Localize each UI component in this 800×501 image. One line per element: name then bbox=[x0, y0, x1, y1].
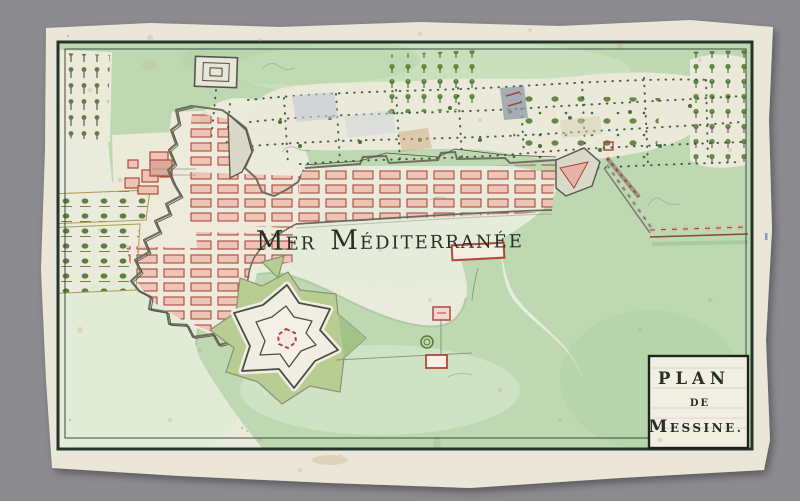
cartouche-line2: DE bbox=[690, 398, 710, 409]
orchard-northeast bbox=[686, 50, 746, 164]
square-fort bbox=[194, 56, 237, 87]
title-cartouche: PLAN DE MESSINE. bbox=[649, 356, 748, 448]
orchard-central bbox=[383, 50, 484, 114]
tree-field bbox=[62, 53, 110, 140]
blue-mark bbox=[765, 233, 768, 240]
cartouche-line1: PLAN bbox=[658, 369, 730, 388]
map-content: MERMÉDITERRANÉE bbox=[25, 35, 751, 465]
map-scene: MERMÉDITERRANÉE PLAN DE MESSINE. bbox=[0, 0, 800, 501]
shore-building bbox=[426, 355, 447, 368]
citadel-core bbox=[278, 329, 296, 348]
